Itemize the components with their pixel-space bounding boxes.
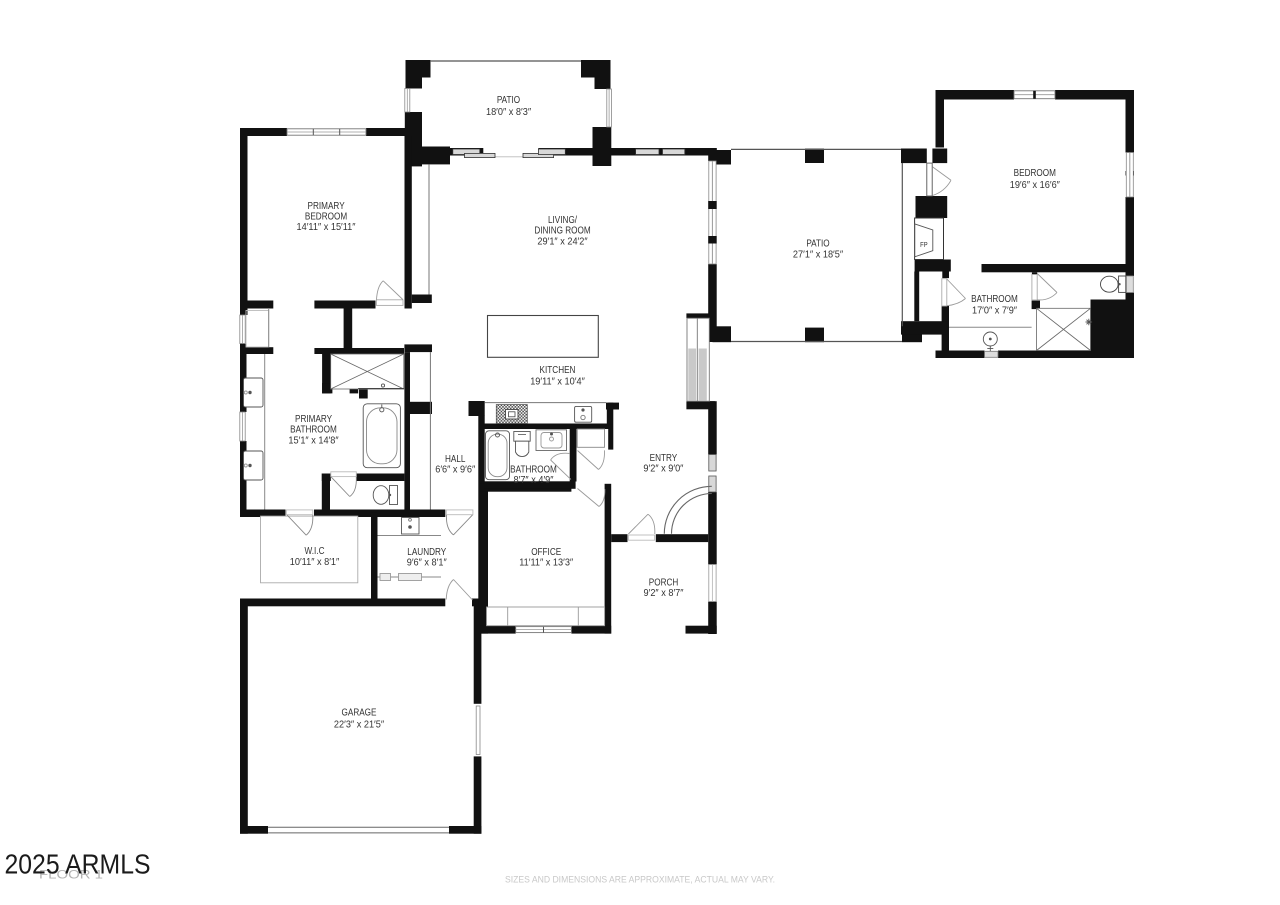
svg-text:22′3″ x 21′5″: 22′3″ x 21′5″: [334, 719, 385, 731]
svg-text:6′6″ x 9′6″: 6′6″ x 9′6″: [435, 464, 476, 476]
svg-text:PORCH: PORCH: [649, 575, 679, 587]
svg-text:9′6″ x 8′1″: 9′6″ x 8′1″: [407, 557, 448, 569]
svg-text:BATHROOM: BATHROOM: [290, 423, 337, 435]
svg-text:PATIO: PATIO: [497, 93, 520, 105]
svg-text:BEDROOM: BEDROOM: [305, 209, 347, 221]
svg-text:18′0″ x 8′3″: 18′0″ x 8′3″: [486, 106, 532, 118]
svg-text:FP: FP: [920, 241, 928, 249]
svg-text:BEDROOM: BEDROOM: [1014, 166, 1056, 178]
svg-text:ENTRY: ENTRY: [650, 451, 678, 463]
svg-text:LAUNDRY: LAUNDRY: [407, 545, 447, 557]
svg-text:10′11″ x 8′1″: 10′11″ x 8′1″: [290, 557, 340, 569]
svg-text:29′1″ x 24′2″: 29′1″ x 24′2″: [537, 236, 588, 248]
svg-text:HALL: HALL: [445, 452, 465, 464]
svg-text:2025 ARMLS: 2025 ARMLS: [5, 849, 151, 880]
svg-text:9′2″ x 8′7″: 9′2″ x 8′7″: [644, 588, 685, 600]
svg-text:8′7″ x 4′9″: 8′7″ x 4′9″: [514, 475, 555, 487]
svg-text:11′11″ x 13′3″: 11′11″ x 13′3″: [519, 557, 573, 569]
svg-text:BATHROOM: BATHROOM: [971, 292, 1018, 304]
svg-text:15′1″ x 14′8″: 15′1″ x 14′8″: [288, 435, 339, 447]
svg-text:27′1″ x 18′5″: 27′1″ x 18′5″: [793, 249, 844, 261]
svg-text:DINING ROOM: DINING ROOM: [534, 223, 591, 235]
svg-text:W.I.C: W.I.C: [305, 544, 325, 556]
svg-text:19′11″ x 10′4″: 19′11″ x 10′4″: [530, 376, 585, 388]
svg-text:14′11″ x 15′11″: 14′11″ x 15′11″: [297, 221, 357, 233]
svg-text:PATIO: PATIO: [806, 236, 829, 248]
svg-text:OFFICE: OFFICE: [531, 545, 561, 557]
svg-text:9′2″ x 9′0″: 9′2″ x 9′0″: [643, 463, 684, 475]
svg-text:SIZES AND DIMENSIONS ARE APPRO: SIZES AND DIMENSIONS ARE APPROXIMATE, AC…: [505, 875, 775, 886]
svg-text:KITCHEN: KITCHEN: [540, 363, 576, 375]
svg-text:19′6″ x 16′6″: 19′6″ x 16′6″: [1010, 179, 1061, 191]
svg-text:GARAGE: GARAGE: [341, 705, 376, 717]
svg-text:BATHROOM: BATHROOM: [510, 463, 557, 475]
svg-text:17′0″ x 7′9″: 17′0″ x 7′9″: [972, 305, 1018, 317]
